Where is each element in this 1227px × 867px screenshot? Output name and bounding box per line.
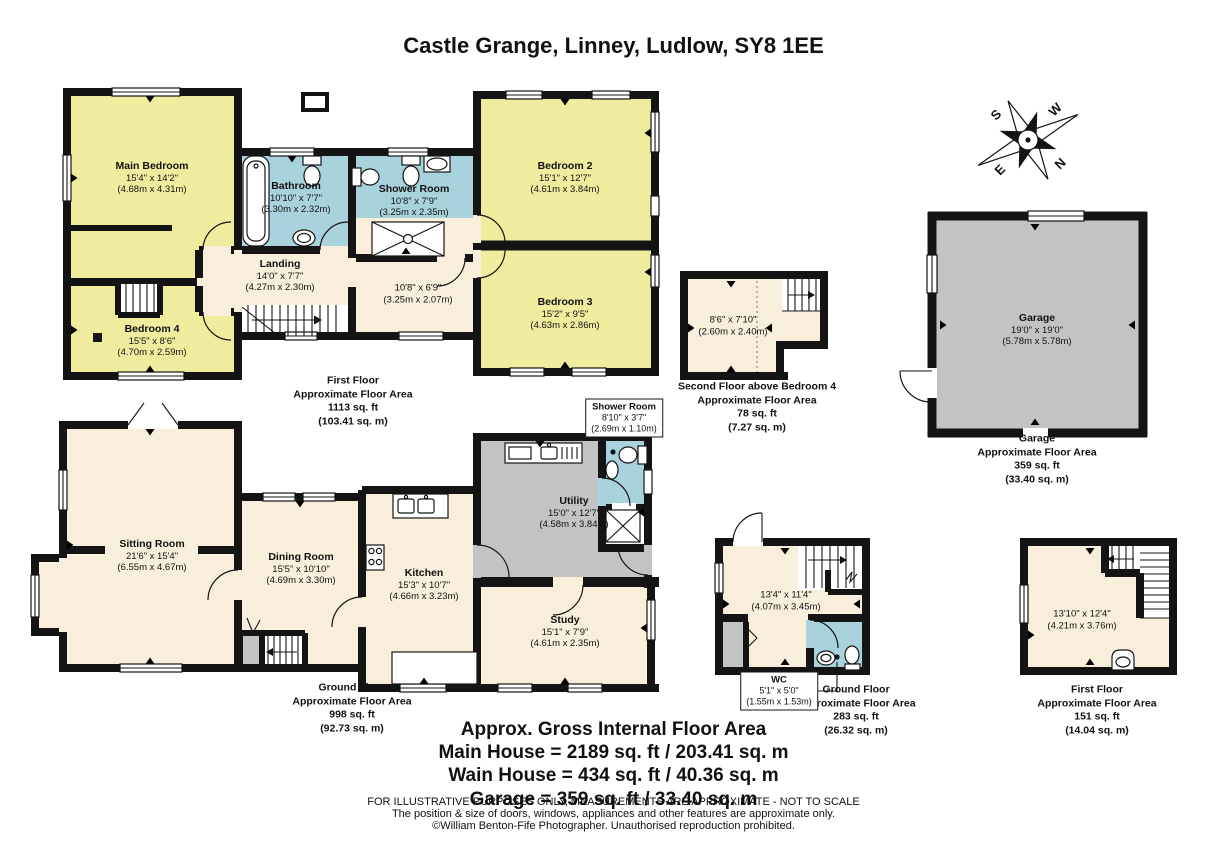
room-dim-metric: (5.78m x 5.78m) xyxy=(1002,336,1071,348)
garage-area-label: Garage Approximate Floor Area 359 sq. ft… xyxy=(977,433,1096,488)
area-line: Approximate Floor Area xyxy=(977,446,1096,460)
room-dim-metric: (4.58m x 3.84m) xyxy=(539,519,608,531)
summary-main-house: Main House = 2189 sq. ft / 203.41 sq. m xyxy=(0,741,1227,764)
room-label-dining-room: Dining Room 15'5" x 10'10" (4.69m x 3.30… xyxy=(266,551,335,587)
showerroom-bidet-icon xyxy=(352,168,379,186)
room-dim-imperial: 15'5" x 10'10" xyxy=(266,564,335,576)
second-floor-area-label: Second Floor above Bedroom 4 Approximate… xyxy=(678,381,836,436)
room-dim-metric: (1.55m x 1.53m) xyxy=(746,697,812,708)
room-name: WC xyxy=(746,675,812,686)
area-line: (33.40 sq. m) xyxy=(977,474,1096,488)
room-label-second-floor: 8'6" x 7'10" (2.60m x 2.40m) xyxy=(698,314,767,337)
room-dim-metric: (4.61m x 2.35m) xyxy=(530,638,599,650)
room-dim-imperial: 8'10" x 3'7" xyxy=(591,413,657,424)
area-line: Garage xyxy=(977,433,1096,447)
room-dim-imperial: 13'4" x 11'4" xyxy=(751,589,820,601)
room-name: Shower Room xyxy=(379,183,450,196)
area-line: (7.27 sq. m) xyxy=(678,422,836,436)
room-label-bedroom-3: Bedroom 3 15'2" x 9'5" (4.63m x 2.86m) xyxy=(530,296,599,332)
room-name: Bedroom 2 xyxy=(530,160,599,173)
room-name: Bedroom 4 xyxy=(117,323,186,336)
kitchen-sink-icon xyxy=(393,494,448,518)
room-label-study: Study 15'1" x 7'9" (4.61m x 2.35m) xyxy=(530,614,599,650)
wain-first-toilet-icon xyxy=(1112,650,1134,670)
chimney xyxy=(303,94,327,110)
room-dim-imperial: 10'8" x 7'9" xyxy=(379,196,450,208)
room-name: Garage xyxy=(1002,312,1071,325)
room-dim-imperial: 15'3" x 10'7" xyxy=(389,580,458,592)
wain-first-plan xyxy=(1020,538,1177,675)
room-label-shower-room-gf: Shower Room 8'10" x 3'7" (2.69m x 1.10m) xyxy=(585,399,663,438)
room-dim-metric: (3.30m x 2.32m) xyxy=(261,204,330,216)
room-dim-imperial: 5'1" x 5'0" xyxy=(746,686,812,697)
room-name: Shower Room xyxy=(591,402,657,413)
room-dim-imperial: 10'8" x 6'9" xyxy=(383,282,452,294)
area-line: Approximate Floor Area xyxy=(678,394,836,408)
room-dim-metric: (4.21m x 3.76m) xyxy=(1047,620,1116,632)
floorplan-page: S W E N xyxy=(0,0,1227,867)
room-dim-imperial: 15'5" x 8'6" xyxy=(117,336,186,348)
room-dim-metric: (6.55m x 4.67m) xyxy=(117,562,186,574)
room-dim-metric: (4.61m x 3.84m) xyxy=(530,184,599,196)
room-label-shower-room-ff: Shower Room 10'8" x 7'9" (3.25m x 2.35m) xyxy=(379,183,450,219)
compass-east-label: E xyxy=(992,161,1009,178)
room-dim-imperial: 15'4" x 14'2" xyxy=(116,173,189,185)
room-label-landing: Landing 14'0" x 7'7" (4.27m x 2.30m) xyxy=(245,258,314,294)
room-label-garage: Garage 19'0" x 19'0" (5.78m x 5.78m) xyxy=(1002,312,1071,348)
room-dim-metric: (2.69m x 1.10m) xyxy=(591,424,657,435)
first-floor-area-label: First Floor Approximate Floor Area 1113 … xyxy=(293,375,412,430)
room-dim-metric: (4.63m x 2.86m) xyxy=(530,320,599,332)
compass-west-label: W xyxy=(1046,99,1066,119)
area-line: 359 sq. ft xyxy=(977,460,1096,474)
room-label-bedroom-2: Bedroom 2 15'1" x 12'7" (4.61m x 3.84m) xyxy=(530,160,599,196)
room-dim-metric: (4.27m x 2.30m) xyxy=(245,282,314,294)
room-dim-metric: (4.07m x 3.45m) xyxy=(751,601,820,613)
summary-heading: Approx. Gross Internal Floor Area xyxy=(0,718,1227,741)
room-dim-imperial: 15'2" x 9'5" xyxy=(530,309,599,321)
area-line: 78 sq. ft xyxy=(678,408,836,422)
room-label-utility: Utility 15'0" x 12'7" (4.58m x 3.84m) xyxy=(539,495,608,531)
page-title: Castle Grange, Linney, Ludlow, SY8 1EE xyxy=(0,33,1227,59)
area-line: 1113 sq. ft xyxy=(293,402,412,416)
area-line: First Floor xyxy=(293,375,412,389)
area-line: Approximate Floor Area xyxy=(292,695,411,709)
room-dim-imperial: 10'10" x 7'7" xyxy=(261,193,330,205)
area-line: Ground Floor xyxy=(292,682,411,696)
showerroom-toilet-icon xyxy=(402,156,420,186)
room-label-inner-hall: 10'8" x 6'9" (3.25m x 2.07m) xyxy=(383,282,452,305)
room-label-wc: WC 5'1" x 5'0" (1.55m x 1.53m) xyxy=(740,672,818,711)
kitchen-counter xyxy=(392,652,477,684)
room-dim-metric: (4.66m x 3.23m) xyxy=(389,591,458,603)
compass-south-label: S xyxy=(988,106,1005,123)
compass-north-label: N xyxy=(1052,155,1069,172)
room-dim-imperial: 13'10" x 12'4" xyxy=(1047,608,1116,620)
area-line: (103.41 sq. m) xyxy=(293,416,412,430)
bathroom-sink-icon xyxy=(293,230,315,246)
room-label-kitchen: Kitchen 15'3" x 10'7" (4.66m x 3.23m) xyxy=(389,567,458,603)
disclaimer-text: FOR ILLUSTRATIVE PURPOSES ONLY, MEASUREM… xyxy=(0,796,1227,832)
cooker-icon xyxy=(366,545,384,570)
room-dim-metric: (2.60m x 2.40m) xyxy=(698,326,767,338)
disclaimer-line: The position & size of doors, windows, a… xyxy=(0,808,1227,820)
area-line: First Floor xyxy=(1037,684,1156,698)
room-label-wain-first: 13'10" x 12'4" (4.21m x 3.76m) xyxy=(1047,608,1116,631)
room-name: Bathroom xyxy=(261,180,330,193)
area-line: Approximate Floor Area xyxy=(293,388,412,402)
room-dim-metric: (4.69m x 3.30m) xyxy=(266,575,335,587)
area-line: Second Floor above Bedroom 4 xyxy=(678,381,836,395)
room-label-wain-ground: 13'4" x 11'4" (4.07m x 3.45m) xyxy=(751,589,820,612)
room-name: Dining Room xyxy=(266,551,335,564)
utility-sink-icon xyxy=(505,443,582,463)
room-dim-imperial: 19'0" x 19'0" xyxy=(1002,325,1071,337)
room-name: Utility xyxy=(539,495,608,508)
room-dim-metric: (4.68m x 4.31m) xyxy=(116,184,189,196)
room-label-sitting-room: Sitting Room 21'6" x 15'4" (6.55m x 4.67… xyxy=(117,538,186,574)
room-name: Bedroom 3 xyxy=(530,296,599,309)
room-dim-imperial: 21'6" x 15'4" xyxy=(117,551,186,563)
room-label-bedroom-4: Bedroom 4 15'5" x 8'6" (4.70m x 2.59m) xyxy=(117,323,186,359)
room-dim-imperial: 15'1" x 12'7" xyxy=(530,173,599,185)
room-dim-metric: (3.25m x 2.35m) xyxy=(379,207,450,219)
room-dim-imperial: 8'6" x 7'10" xyxy=(698,314,767,326)
room-dim-metric: (4.70m x 2.59m) xyxy=(117,347,186,359)
room-dim-metric: (3.25m x 2.07m) xyxy=(383,294,452,306)
room-name: Study xyxy=(530,614,599,627)
room-dim-imperial: 14'0" x 7'7" xyxy=(245,271,314,283)
room-name: Landing xyxy=(245,258,314,271)
disclaimer-line: FOR ILLUSTRATIVE PURPOSES ONLY, MEASUREM… xyxy=(0,796,1227,808)
room-dim-imperial: 15'1" x 7'9" xyxy=(530,627,599,639)
room-label-bathroom: Bathroom 10'10" x 7'7" (3.30m x 2.32m) xyxy=(261,180,330,216)
room-label-main-bedroom: Main Bedroom 15'4" x 14'2" (4.68m x 4.31… xyxy=(116,160,189,196)
room-name: Sitting Room xyxy=(117,538,186,551)
room-name: Kitchen xyxy=(389,567,458,580)
room-name: Main Bedroom xyxy=(116,160,189,173)
compass-rose-icon: S W E N xyxy=(972,84,1084,196)
room-dim-imperial: 15'0" x 12'7" xyxy=(539,508,608,520)
area-line: Approximate Floor Area xyxy=(1037,697,1156,711)
showerroom-sink-icon xyxy=(424,156,450,172)
summary-wain-house: Wain House = 434 sq. ft / 40.36 sq. m xyxy=(0,764,1227,787)
disclaimer-line: ©William Benton-Fife Photographer. Unaut… xyxy=(0,820,1227,832)
